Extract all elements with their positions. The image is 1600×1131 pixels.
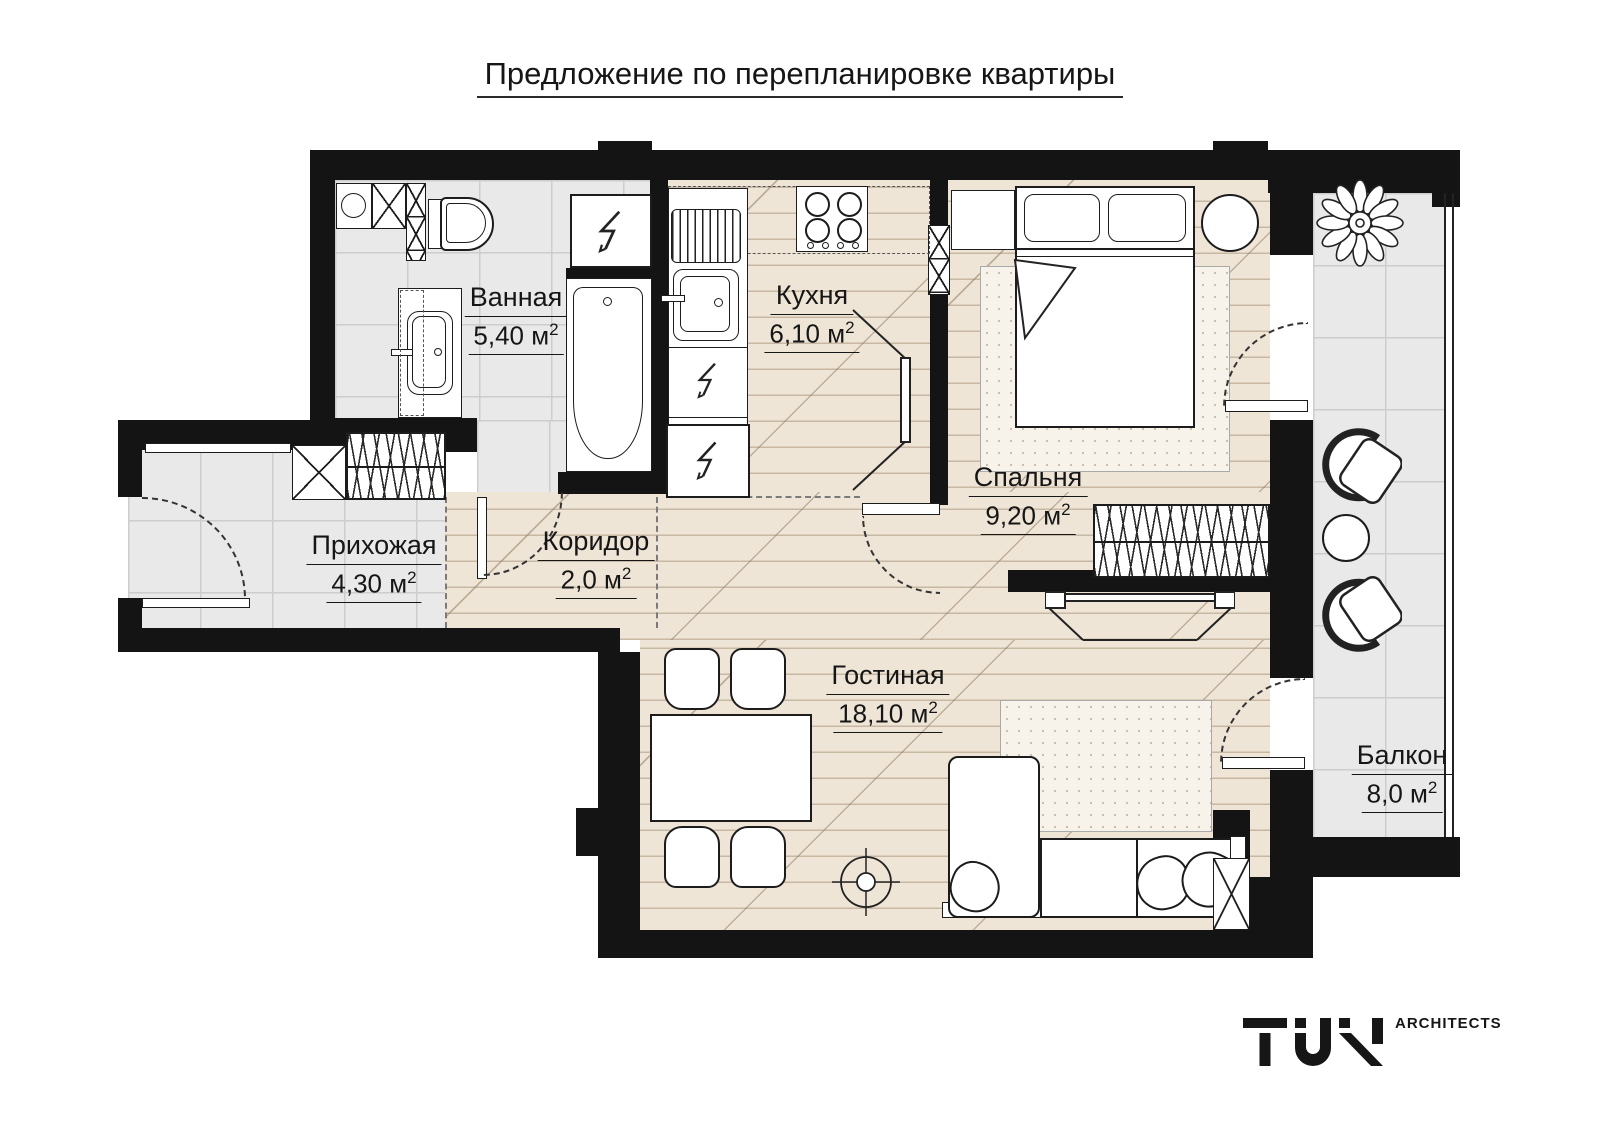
room-name: Кухня xyxy=(771,280,853,315)
room-name: Ванная xyxy=(465,282,567,317)
dresser xyxy=(951,190,1015,250)
drain-icon xyxy=(434,348,442,356)
logo-architects-label: ARCHITECTS xyxy=(1395,1015,1502,1032)
wardrobe-rail xyxy=(348,466,444,468)
cabinet-divider xyxy=(669,417,747,418)
washing-machine-icon xyxy=(570,194,652,268)
wall xyxy=(598,930,1250,958)
storage-cabinet-icon xyxy=(372,183,406,229)
bathroom-counter xyxy=(336,183,372,229)
room-area: 6,10 м2 xyxy=(764,318,859,353)
dishwasher-icon xyxy=(669,351,747,413)
room-label-hallway: Прихожая 4,30 м2 xyxy=(306,530,441,603)
dining-chair xyxy=(730,826,786,888)
vent-shaft-icon xyxy=(928,225,950,295)
page-title: Предложение по перепланировке квартиры xyxy=(0,56,1600,92)
wall xyxy=(118,628,620,652)
room-area: 5,40 м2 xyxy=(468,320,563,355)
lightning-icon xyxy=(594,209,628,253)
room-name: Гостиная xyxy=(826,660,949,695)
room-label-kitchen: Кухня 6,10 м2 xyxy=(764,280,859,353)
wall xyxy=(310,150,1313,180)
wall xyxy=(1270,770,1313,877)
tv-console-icon xyxy=(1045,588,1235,642)
room-name: Балкон xyxy=(1352,740,1453,775)
logo: ARCHITECTS xyxy=(1243,1014,1493,1076)
stove-knob xyxy=(822,242,829,249)
vent-shaft-icon xyxy=(406,183,426,261)
entry-door-leaf xyxy=(142,598,250,608)
toilet-icon xyxy=(440,197,494,251)
room-name: Коридор xyxy=(538,526,655,561)
console-shelf xyxy=(145,443,291,453)
floor-separator xyxy=(656,497,658,628)
stove-knob xyxy=(837,242,844,249)
upper-cabinet-dashed xyxy=(400,290,424,416)
burner-icon xyxy=(805,192,830,217)
floor-plan: Предложение по перепланировке квартиры xyxy=(0,0,1600,1131)
room-area: 18,10 м2 xyxy=(833,698,943,733)
wall xyxy=(1213,141,1268,180)
room-name: Прихожая xyxy=(306,530,441,565)
logo-tun-icon xyxy=(1243,1018,1383,1066)
kitchen-sink-icon xyxy=(673,269,739,341)
wall xyxy=(1270,180,1313,255)
kitchen-door-leaf xyxy=(862,503,940,515)
nightstand-round xyxy=(1201,194,1259,252)
pillow-icon xyxy=(1024,194,1100,242)
wall xyxy=(1270,590,1313,678)
lightning-icon xyxy=(693,440,723,480)
faucet-icon xyxy=(661,295,685,302)
bathtub-icon xyxy=(566,278,652,472)
wall xyxy=(576,808,598,856)
storage-cabinet-icon xyxy=(292,445,346,500)
drain-icon xyxy=(603,297,612,306)
drying-rack-icon xyxy=(671,209,741,263)
wall xyxy=(310,150,335,450)
bedroom-wardrobe-icon xyxy=(1093,504,1270,578)
room-label-balcony: Балкон 8,0 м2 xyxy=(1352,740,1453,813)
dining-table xyxy=(650,714,812,822)
wall xyxy=(598,141,652,180)
dining-chair xyxy=(730,648,786,710)
lightning-icon xyxy=(694,361,722,399)
burner-icon xyxy=(837,218,862,243)
floor-lamp-icon xyxy=(832,848,900,916)
balcony-chair xyxy=(1318,566,1402,652)
room-area: 2,0 м2 xyxy=(556,564,637,599)
wall xyxy=(598,652,640,935)
bathtub-inner xyxy=(573,287,643,459)
hallway-wardrobe-icon xyxy=(346,432,446,500)
wall xyxy=(118,450,142,497)
pillow-icon xyxy=(1108,194,1186,242)
room-label-bedroom: Спальня 9,20 м2 xyxy=(969,462,1088,535)
dining-chair xyxy=(664,826,720,888)
room-name: Спальня xyxy=(969,462,1088,497)
room-label-corridor: Коридор 2,0 м2 xyxy=(538,526,655,599)
wall xyxy=(1270,420,1313,590)
dining-chair xyxy=(664,648,720,710)
balcony-table xyxy=(1322,514,1370,562)
room-label-bathroom: Ванная 5,40 м2 xyxy=(465,282,567,355)
wall xyxy=(558,472,668,494)
stove-icon xyxy=(796,186,868,252)
room-area: 9,20 м2 xyxy=(980,500,1075,535)
bed-icon xyxy=(1015,186,1195,428)
room-label-living: Гостиная 18,10 м2 xyxy=(826,660,949,733)
burner-icon xyxy=(805,218,830,243)
wardrobe-rail xyxy=(1095,541,1268,543)
sheet-line xyxy=(1017,248,1193,250)
stove-knob xyxy=(852,242,859,249)
wall xyxy=(1250,877,1313,958)
stove-knob xyxy=(807,242,814,249)
room-area: 8,0 м2 xyxy=(1362,778,1443,813)
round-sink-icon xyxy=(341,193,366,218)
storage-cabinet-icon xyxy=(1213,858,1250,930)
wall xyxy=(1313,837,1460,877)
blanket-fold-icon xyxy=(1013,252,1083,344)
cabinet-divider xyxy=(669,347,747,348)
balcony-chair xyxy=(1318,428,1402,514)
drain-icon xyxy=(714,298,723,307)
toilet-bowl xyxy=(446,203,486,243)
fridge-icon xyxy=(666,424,750,498)
room-area: 4,30 м2 xyxy=(326,568,421,603)
plant-icon xyxy=(1316,178,1404,270)
floor-separator xyxy=(445,497,447,628)
burner-icon xyxy=(837,192,862,217)
